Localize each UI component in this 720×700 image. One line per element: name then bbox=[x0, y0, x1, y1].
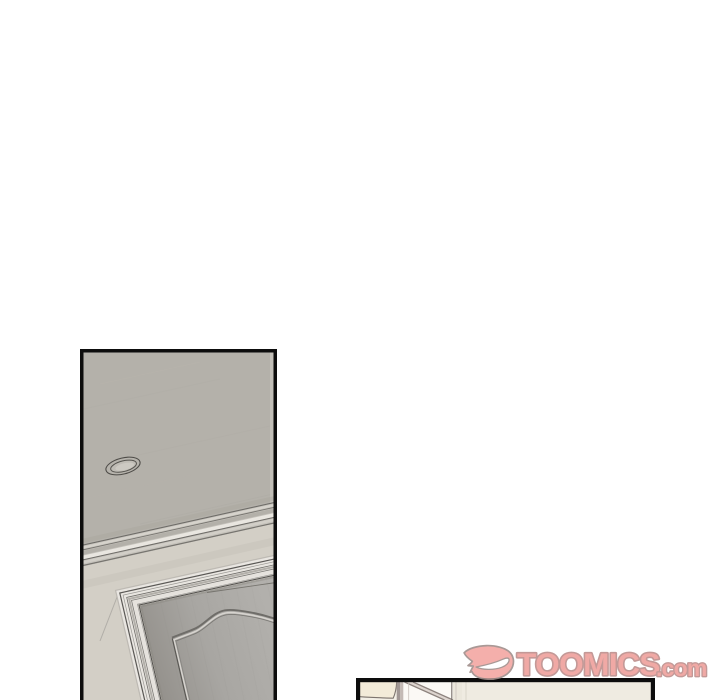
svg-text:.com: .com bbox=[656, 655, 707, 681]
svg-text:TOOMICS: TOOMICS bbox=[517, 646, 660, 682]
